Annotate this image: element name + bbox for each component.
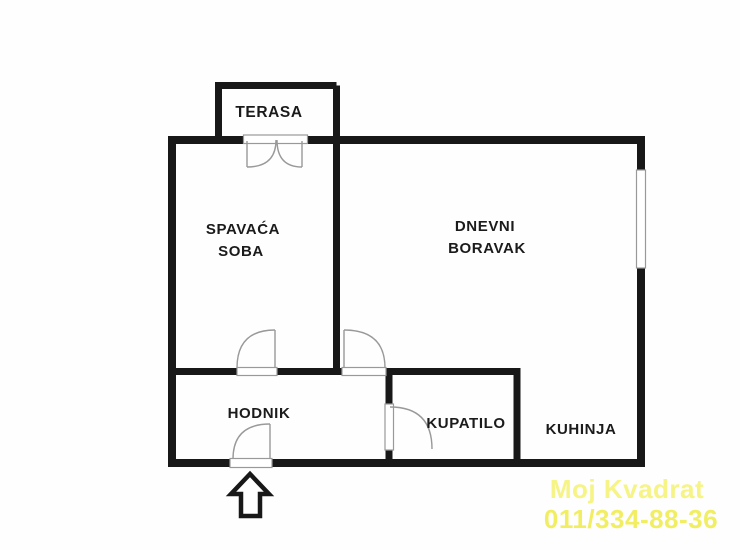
entrance-arrow-icon [231, 474, 269, 516]
livingroom-window [637, 170, 646, 268]
bedroom-door-arc [237, 330, 275, 368]
room-label-spavaca-soba-line1: SPAVAĆA [206, 220, 280, 238]
room-label-hodnik: HODNIK [228, 405, 291, 422]
watermark-company: Moj Kvadrat [550, 474, 704, 504]
room-label-kuhinja: KUHINJA [546, 421, 617, 438]
room-labels: TERASA SPAVAĆA SOBA DNEVNI BORAVAK HODNI… [206, 104, 617, 438]
room-label-kupatilo: KUPATILO [426, 415, 505, 432]
entrance-door-arc [233, 424, 270, 459]
bedroom-door-threshold [237, 368, 277, 376]
entrance-door-threshold [230, 459, 272, 468]
room-label-dnevni-boravak-line2: BORAVAK [448, 240, 526, 257]
watermark-phone: 011/334-88-36 [544, 504, 718, 534]
livingroom-door-threshold [342, 368, 386, 376]
floor-plan-drawing: TERASA SPAVAĆA SOBA DNEVNI BORAVAK HODNI… [0, 0, 740, 550]
floor-plan-page: TERASA SPAVAĆA SOBA DNEVNI BORAVAK HODNI… [0, 0, 740, 550]
bathroom-door-leaf [385, 404, 394, 450]
room-label-spavaca-soba-line2: SOBA [218, 243, 264, 260]
room-label-terasa: TERASA [235, 104, 302, 121]
room-label-dnevni-boravak-line1: DNEVNI [455, 218, 515, 235]
watermark: Moj Kvadrat 011/334-88-36 [544, 474, 718, 534]
livingroom-door-arc [344, 330, 385, 368]
